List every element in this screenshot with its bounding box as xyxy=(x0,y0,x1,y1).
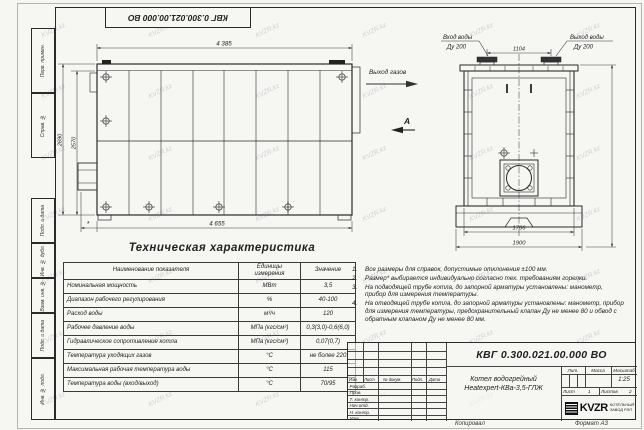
note-item: Размер* выбирается индивидуально согласн… xyxy=(352,275,624,283)
margin-label: Взам. инв. № xyxy=(40,280,46,312)
margin-label: Перв. примен. xyxy=(40,44,46,77)
note-item: На отводящей трубе котла, до запорной ар… xyxy=(352,300,624,323)
spec-row: Температура воды (вход/выход)°С70/95 xyxy=(64,377,356,391)
spec-row: Рабочее давление водыМПа (кгс/см²)0,3(3,… xyxy=(64,321,356,335)
spec-row: Температура уходящих газов°Сне более 220 xyxy=(64,349,356,363)
spec-units: °С xyxy=(239,349,301,363)
tb-row-prov: Пров. xyxy=(350,390,362,395)
tb-row-nkontr: Н. контр. xyxy=(350,410,371,415)
tb-row-tkontr: Т. контр. xyxy=(350,397,370,402)
spec-units: °С xyxy=(239,363,301,377)
spec-units: °С xyxy=(239,377,301,391)
spec-value: 0,3(3,0)-0,6(6,0) xyxy=(301,321,356,335)
tb-product-line2: Heatexpert-КВа-3,5-ГЛЖ xyxy=(464,384,542,393)
spec-value: 120 xyxy=(301,307,356,321)
tb-scale-value: 1:25 xyxy=(611,377,637,383)
tb-lit-label: Лит. xyxy=(561,368,585,373)
tb-col-podp: Подп. xyxy=(412,377,423,382)
tb-sheets-label: Листов xyxy=(601,389,618,394)
note-item: Все размеры для справок, допустимые откл… xyxy=(352,266,624,274)
tb-mass-label: Масса xyxy=(585,368,611,373)
tb-product-line1: Котел водогрейный xyxy=(470,375,537,384)
spec-units: % xyxy=(239,293,301,307)
tb-sheet-value: 1 xyxy=(588,389,591,394)
logo-name: KVZR xyxy=(580,402,608,414)
tb-row-razrab: Разраб. xyxy=(350,384,367,389)
margin-label: Инв. № подл. xyxy=(40,373,46,405)
spec-row: Расход водым³/ч120 xyxy=(64,307,356,321)
margin-box-podp-data-1: Подп. и дата xyxy=(31,198,55,243)
tb-col-dokum: № докум. xyxy=(383,377,401,382)
spec-row: Максимальная рабочая температура воды°С1… xyxy=(64,363,356,377)
copy-label: Копировал xyxy=(455,421,485,427)
margin-box-podp-data-2: Подп. и дата xyxy=(31,313,55,358)
margin-box-perv-primen: Перв. примен. xyxy=(31,28,55,93)
notes-list: Все размеры для справок, допустимые откл… xyxy=(352,266,624,325)
top-stamp: КВГ 0.300.021.00.000 ВО xyxy=(105,7,251,28)
margin-box-sprav-no: Справ. № xyxy=(31,93,55,158)
spec-param: Максимальная рабочая температура воды xyxy=(64,363,239,377)
spec-units: МПа (кгс/см²) xyxy=(239,321,301,335)
spec-param: Диапазон рабочего регулирования xyxy=(64,293,239,307)
spec-row: Диапазон рабочего регулирования%40-100 xyxy=(64,293,356,307)
spec-units: м³/ч xyxy=(239,307,301,321)
spec-param: Температура уходящих газов xyxy=(64,349,239,363)
tb-sheet-label: Лист xyxy=(563,389,575,394)
spec-table: Наименование показателя Единицы измерени… xyxy=(63,262,356,392)
spec-header-value: Значение xyxy=(301,263,356,280)
tb-col-data: Дата xyxy=(429,377,440,382)
spec-header-name: Наименование показателя xyxy=(64,263,239,280)
spec-value: 40-100 xyxy=(301,293,356,307)
spec-param: Гидравлическое сопротивление котла xyxy=(64,335,239,349)
margin-label: Подп. и дата xyxy=(40,320,46,351)
spec-row: Номинальная мощностьМВт3,5 xyxy=(64,279,356,293)
note-item: На подводящей трубе котла, до запорной а… xyxy=(352,284,624,300)
spec-param: Номинальная мощность xyxy=(64,279,239,293)
tb-row-utv: Утв. xyxy=(350,416,360,421)
spec-units: МПа (кгс/см²) xyxy=(239,335,301,349)
tb-col-izm: Изм xyxy=(349,377,357,382)
margin-label: Справ. № xyxy=(40,114,46,137)
title-block: Изм Лист № докум. Подп. Дата Разраб. Про… xyxy=(347,342,636,420)
spec-param: Рабочее давление воды xyxy=(64,321,239,335)
tb-row-nachotd: Нач.отд. xyxy=(350,403,369,408)
margin-box-vzam-inv: Взам. инв. № xyxy=(31,278,55,313)
tb-doc-number: КВГ 0.300.021.00.000 ВО xyxy=(446,343,637,366)
tb-sheets-value: 2 xyxy=(629,389,632,394)
top-stamp-number: КВГ 0.300.021.00.000 ВО xyxy=(128,13,228,23)
spec-units: МВт xyxy=(239,279,301,293)
spec-param: Расход воды xyxy=(64,307,239,321)
spec-row: Гидравлическое сопротивление котлаМПа (к… xyxy=(64,335,356,349)
spec-value: 3,5 xyxy=(301,279,356,293)
margin-box-inv-podl: Инв. № подл. xyxy=(31,358,55,420)
tb-col-list: Лист xyxy=(364,377,375,382)
logo-icon xyxy=(565,402,578,415)
drawing-sheet: KVZR.kzKVZR.kzKVZR.kzKVZR.kzKVZR.kzKVZR.… xyxy=(0,0,644,430)
spec-title: Техническая характеристика xyxy=(97,242,347,254)
margin-label: Инв. № дубл. xyxy=(40,245,46,276)
spec-param: Температура воды (вход/выход) xyxy=(64,377,239,391)
logo-subtitle-2: ЗАВОД РЭП xyxy=(610,408,635,413)
spec-header-row: Наименование показателя Единицы измерени… xyxy=(64,263,356,280)
margin-label: Подп. и дата xyxy=(40,205,46,236)
margin-box-inv-dubl: Инв. № дубл. xyxy=(31,243,55,278)
tb-scale-label: Масштаб xyxy=(611,368,637,373)
company-logo: KVZR КОТЕЛЬНЫЙ ЗАВОД РЭП xyxy=(562,395,637,421)
spec-header-units: Единицы измерения xyxy=(239,263,301,280)
tb-product-name: Котел водогрейный Heatexpert-КВа-3,5-ГЛЖ xyxy=(446,366,561,421)
format-label: Формат А3 xyxy=(575,421,608,427)
